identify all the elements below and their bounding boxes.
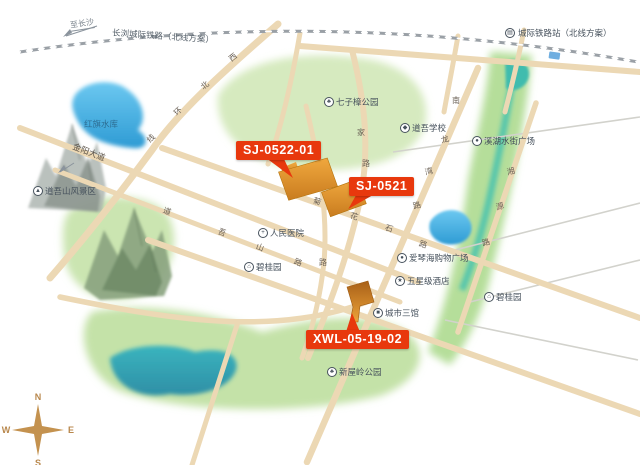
city-three-halls-icon: ■ bbox=[373, 308, 383, 318]
compass-s: S bbox=[35, 458, 41, 465]
xihu-water-street-plaza: ●溪湖水街广场 bbox=[472, 135, 535, 147]
compass-e: E bbox=[68, 425, 74, 435]
daowushan-scenic-area: ▲道吾山风景区 bbox=[33, 185, 96, 197]
biguiyuan-west-text: 碧桂园 bbox=[256, 261, 282, 273]
aiqinhai-shopping-plaza: ●爱琴海购物广场 bbox=[397, 252, 469, 264]
qizizhang-park: ♣七子樟公园 bbox=[324, 96, 379, 108]
road-name-char-nan-road: 南 bbox=[452, 95, 460, 106]
road-juhuashi bbox=[162, 148, 640, 318]
city-three-halls-text: 城市三馆 bbox=[385, 307, 419, 319]
aiqinhai-shopping-plaza-icon: ● bbox=[397, 253, 407, 263]
road-name-char-lu-vertical: 路 bbox=[319, 257, 327, 268]
station-marker bbox=[548, 51, 560, 59]
compass-w: W bbox=[2, 425, 11, 435]
biguiyuan-east: ⌂碧桂园 bbox=[484, 291, 522, 303]
to-changsha-label: 至长沙 bbox=[69, 16, 94, 31]
railway-station-label: ▤ 城际铁路站（北线方案） bbox=[505, 27, 612, 39]
road-name-char-jia-road: 路 bbox=[362, 158, 370, 169]
peoples-hospital: +人民医院 bbox=[258, 227, 304, 239]
xinwuling-park-text: 新屋岭公园 bbox=[339, 366, 382, 378]
xihu-water-street-plaza-icon: ● bbox=[472, 136, 482, 146]
qizizhang-park-text: 七子樟公园 bbox=[336, 96, 379, 108]
callout-sj-0522-01: SJ-0522-01 bbox=[236, 141, 321, 160]
five-star-hotel: ★五星级酒店 bbox=[395, 275, 450, 287]
daowu-school-icon: ◆ bbox=[400, 123, 410, 133]
hongqi-reservoir-label-text: 红旗水库 bbox=[84, 118, 118, 130]
hongqi-reservoir-label: 红旗水库 bbox=[84, 118, 118, 130]
daowushan-scenic-area-icon: ▲ bbox=[33, 186, 43, 196]
road-name-char-jia-road: 家 bbox=[357, 127, 365, 138]
five-star-hotel-text: 五星级酒店 bbox=[407, 275, 450, 287]
xinwuling-park: ♣新屋岭公园 bbox=[327, 366, 382, 378]
five-star-hotel-icon: ★ bbox=[395, 276, 405, 286]
callout-xwl-05-19-02: XWL-05-19-02 bbox=[306, 330, 409, 349]
peoples-hospital-text: 人民医院 bbox=[270, 227, 304, 239]
train-station-icon: ▤ bbox=[505, 28, 515, 38]
map-graphics: N E S W bbox=[0, 0, 640, 465]
pond bbox=[429, 210, 471, 244]
biguiyuan-west-icon: ⌂ bbox=[244, 262, 254, 272]
biguiyuan-east-text: 碧桂园 bbox=[496, 291, 522, 303]
xihu-water-street-plaza-text: 溪湖水街广场 bbox=[484, 135, 535, 147]
xinwuling-park-icon: ♣ bbox=[327, 367, 337, 377]
compass-n: N bbox=[35, 392, 42, 402]
callout-sj-0521: SJ-0521 bbox=[349, 177, 414, 196]
compass-rose: N E S W bbox=[2, 392, 74, 465]
daowu-school-text: 道吾学校 bbox=[412, 122, 446, 134]
aiqinhai-shopping-plaza-text: 爱琴海购物广场 bbox=[409, 252, 469, 264]
biguiyuan-east-icon: ⌂ bbox=[484, 292, 494, 302]
qizizhang-park-icon: ♣ bbox=[324, 97, 334, 107]
peoples-hospital-icon: + bbox=[258, 228, 268, 238]
biguiyuan-west: ⌂碧桂园 bbox=[244, 261, 282, 273]
city-three-halls: ■城市三馆 bbox=[373, 307, 419, 319]
hongqi-reservoir bbox=[72, 82, 145, 148]
daowushan-scenic-area-text: 道吾山风景区 bbox=[45, 185, 96, 197]
planning-map: N E S W 至长沙 长浏城际铁路（北线方案） ▤ 城际铁路站（北线方案） 金… bbox=[0, 0, 640, 465]
daowu-school: ◆道吾学校 bbox=[400, 122, 446, 134]
